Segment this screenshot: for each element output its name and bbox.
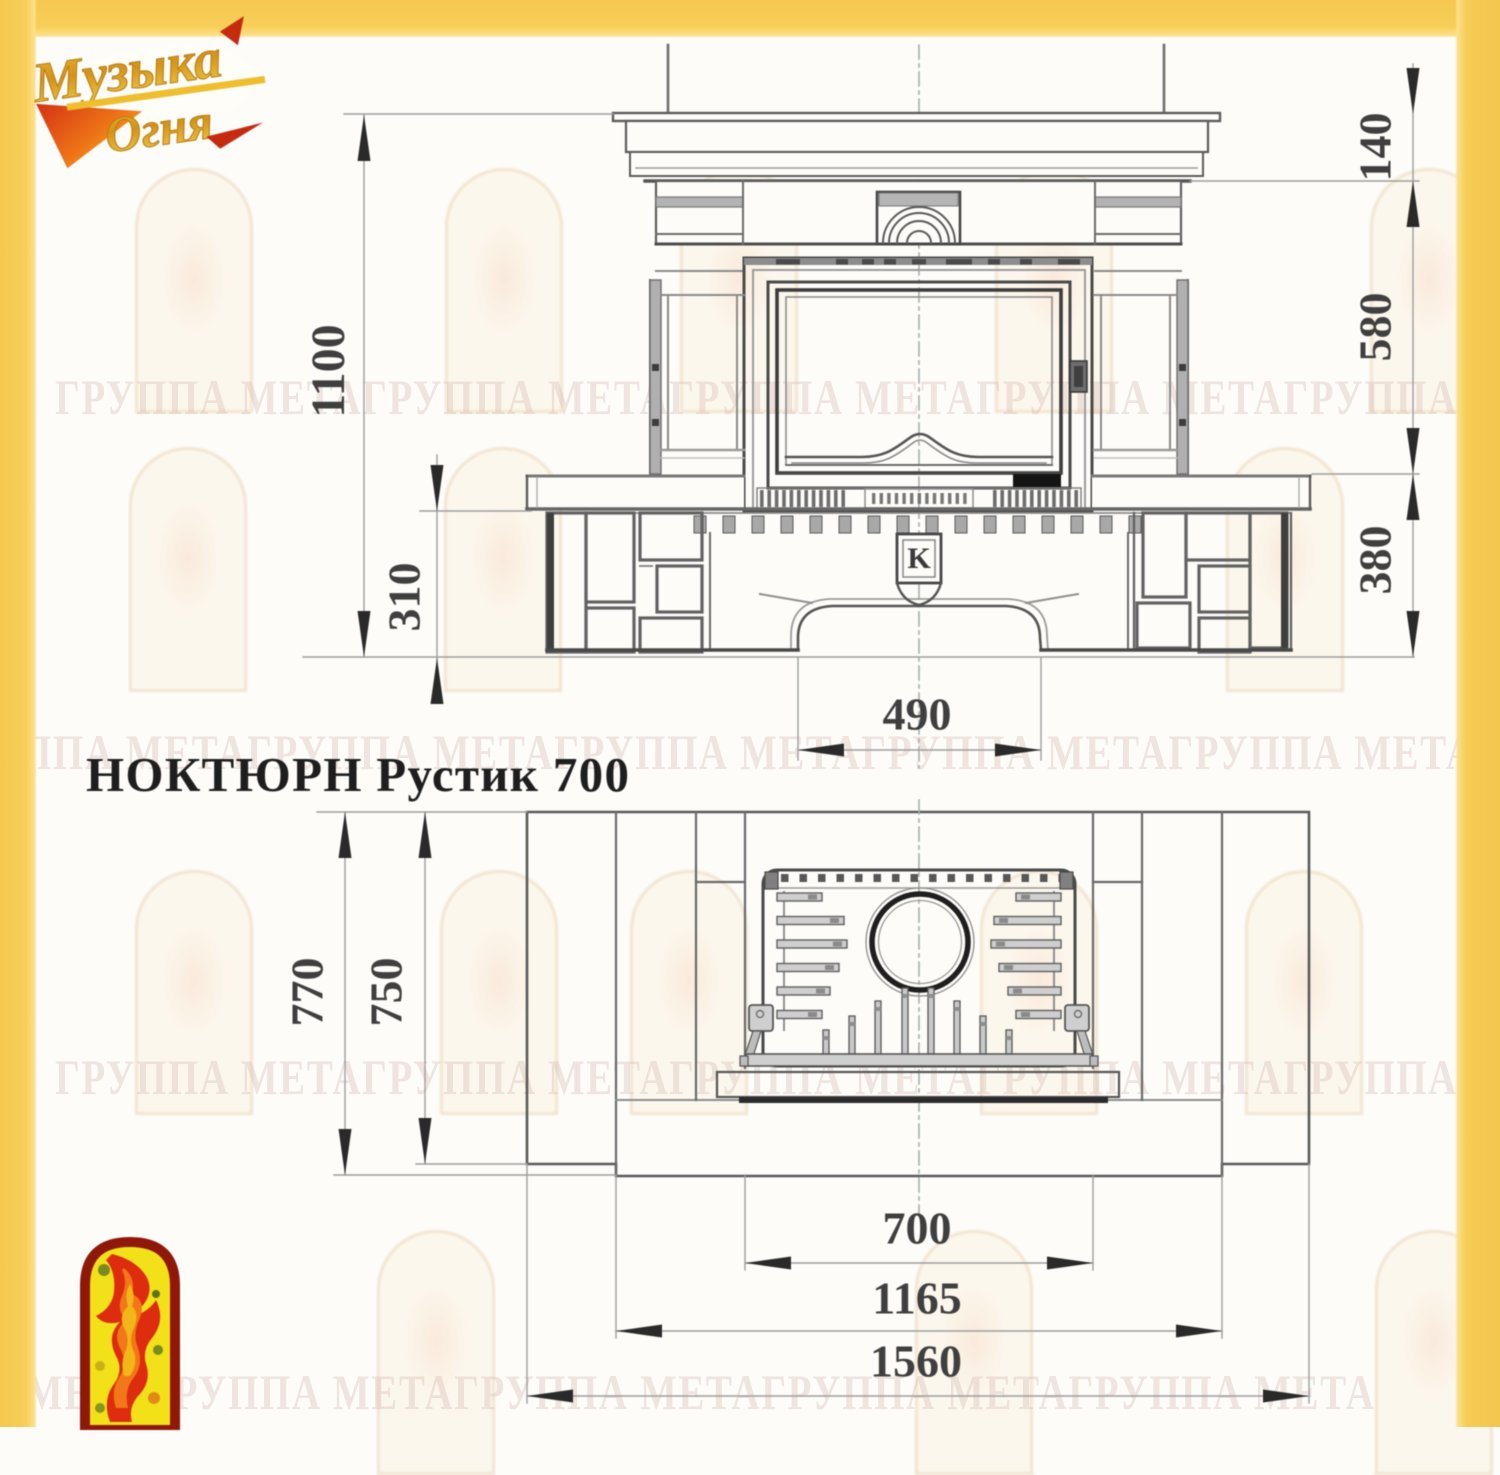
svg-text:380: 380 bbox=[1350, 526, 1401, 595]
svg-text:490: 490 bbox=[883, 689, 952, 740]
svg-text:770: 770 bbox=[282, 958, 333, 1027]
svg-text:1100: 1100 bbox=[302, 324, 355, 417]
svg-text:K: K bbox=[907, 542, 931, 575]
svg-text:700: 700 bbox=[883, 1203, 952, 1254]
svg-text:580: 580 bbox=[1350, 293, 1401, 362]
svg-text:750: 750 bbox=[361, 958, 412, 1027]
svg-text:140: 140 bbox=[1350, 113, 1401, 182]
svg-text:310: 310 bbox=[379, 563, 430, 632]
svg-text:1165: 1165 bbox=[872, 1273, 961, 1324]
svg-text:1560: 1560 bbox=[870, 1336, 962, 1387]
